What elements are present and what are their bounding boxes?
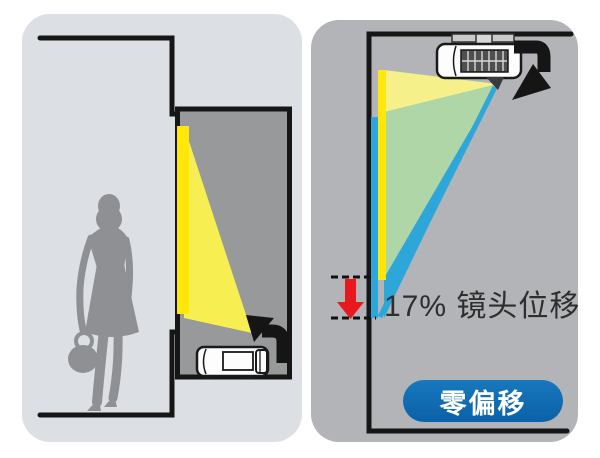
right-room <box>331 34 571 431</box>
zero-offset-badge: 零偏移 <box>403 380 563 422</box>
left-wall-upper-line <box>40 38 178 114</box>
person-silhouette <box>68 194 139 411</box>
red-down-arrow-icon <box>337 279 364 319</box>
left-room <box>40 38 290 415</box>
left-image-strip <box>177 126 189 314</box>
lens-shift-comparison-figure: 17% 镜头位移 零偏移 <box>0 0 600 458</box>
floor-projector-icon <box>197 347 268 379</box>
right-image-strip-blue <box>371 117 378 318</box>
right-image-strip-yellow <box>378 70 386 280</box>
lens-shift-label: 17% 镜头位移 <box>384 281 580 325</box>
zero-offset-badge-label: 零偏移 <box>440 382 527 421</box>
